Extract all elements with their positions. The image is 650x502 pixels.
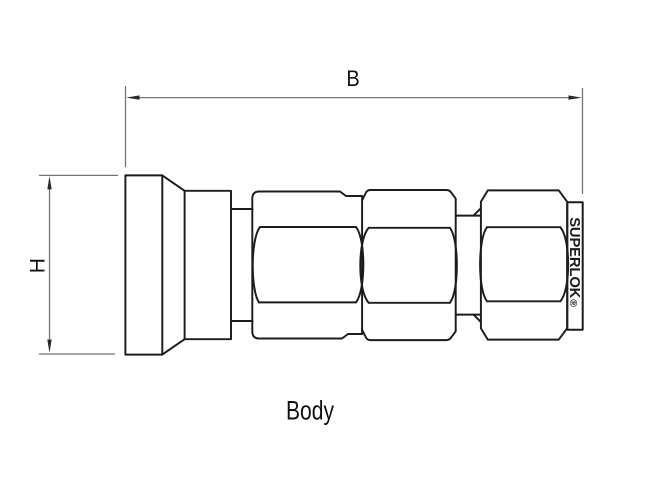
svg-text:SUPERLOK®: SUPERLOK® [566,217,582,307]
svg-text:Body: Body [286,396,335,426]
svg-text:B: B [346,67,359,91]
svg-text:H: H [27,258,50,273]
